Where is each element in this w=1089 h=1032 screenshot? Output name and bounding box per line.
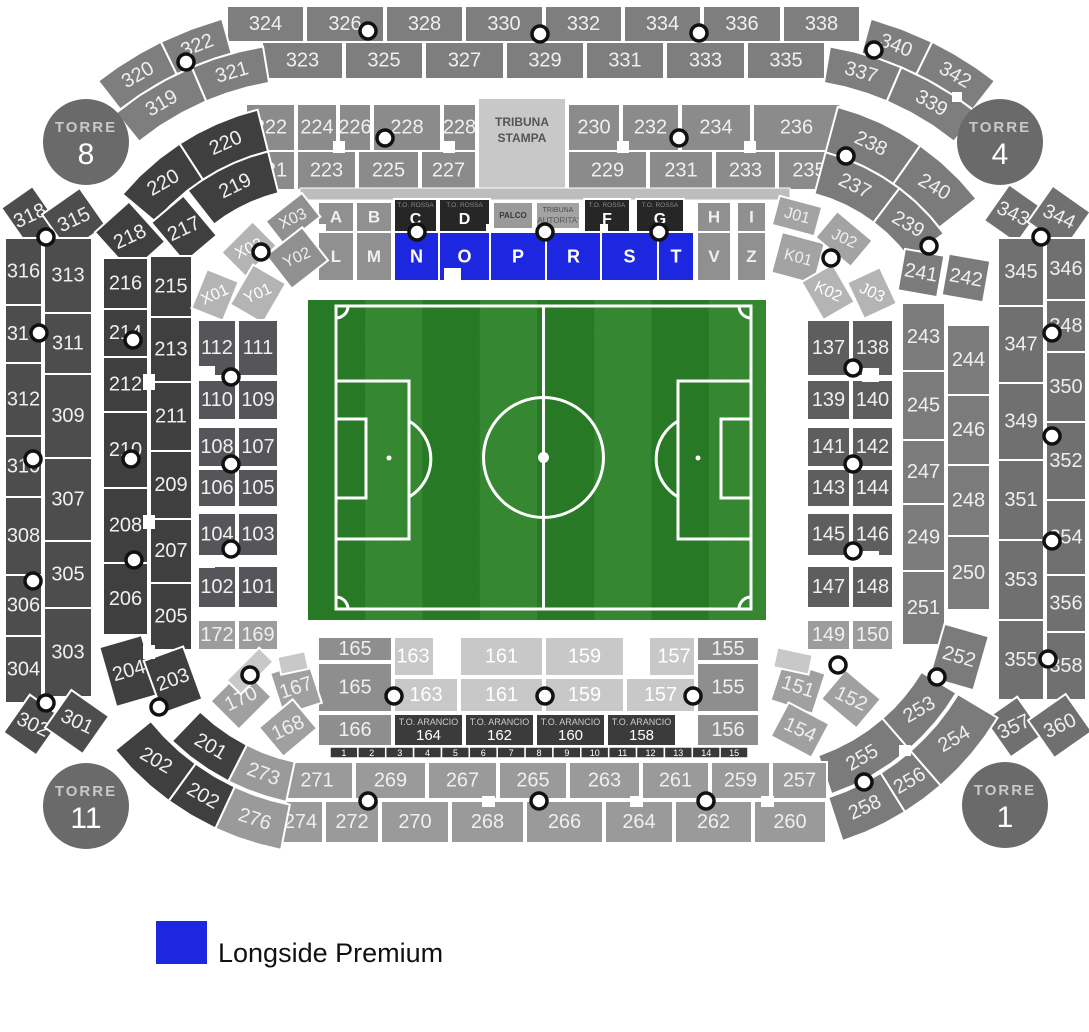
svg-text:331: 331 <box>608 50 641 72</box>
svg-text:249: 249 <box>907 527 940 549</box>
svg-text:161: 161 <box>485 684 518 706</box>
svg-text:TORRE: TORRE <box>969 119 1031 136</box>
svg-text:213: 213 <box>154 339 187 361</box>
svg-text:212: 212 <box>109 374 142 396</box>
svg-text:TRIBUNA: TRIBUNA <box>543 207 574 214</box>
svg-text:159: 159 <box>568 646 601 668</box>
svg-text:V: V <box>708 247 720 266</box>
svg-text:8: 8 <box>536 748 541 758</box>
svg-text:15: 15 <box>729 748 739 758</box>
svg-text:146: 146 <box>856 524 889 546</box>
svg-text:304: 304 <box>7 659 40 681</box>
svg-text:112: 112 <box>201 337 233 359</box>
svg-text:306: 306 <box>7 595 40 617</box>
svg-text:209: 209 <box>154 474 187 496</box>
svg-text:137: 137 <box>812 337 845 359</box>
svg-text:145: 145 <box>812 524 845 546</box>
svg-text:349: 349 <box>1004 411 1037 433</box>
svg-text:M: M <box>367 247 381 266</box>
svg-text:205: 205 <box>154 606 187 628</box>
svg-text:269: 269 <box>374 770 407 792</box>
svg-text:110: 110 <box>201 389 233 411</box>
svg-text:155: 155 <box>711 638 744 660</box>
svg-text:103: 103 <box>241 524 274 546</box>
svg-text:350: 350 <box>1049 376 1082 398</box>
svg-text:248: 248 <box>952 490 985 512</box>
svg-text:270: 270 <box>398 811 431 833</box>
svg-text:228: 228 <box>390 117 423 139</box>
svg-text:14: 14 <box>701 748 711 758</box>
svg-text:TORRE: TORRE <box>974 782 1036 799</box>
svg-text:4: 4 <box>425 748 430 758</box>
svg-text:111: 111 <box>243 337 273 359</box>
svg-text:STAMPA: STAMPA <box>498 131 547 145</box>
svg-text:11: 11 <box>70 802 101 835</box>
svg-text:160: 160 <box>558 727 583 744</box>
svg-text:138: 138 <box>856 337 889 359</box>
svg-text:323: 323 <box>286 50 319 72</box>
svg-text:8: 8 <box>78 138 95 171</box>
svg-text:102: 102 <box>200 576 233 598</box>
svg-text:347: 347 <box>1004 334 1037 356</box>
svg-text:267: 267 <box>446 770 479 792</box>
svg-text:261: 261 <box>659 770 692 792</box>
svg-text:243: 243 <box>907 326 940 348</box>
svg-text:1: 1 <box>997 801 1014 834</box>
svg-text:345: 345 <box>1004 261 1037 283</box>
svg-text:223: 223 <box>310 160 343 182</box>
svg-text:336: 336 <box>725 13 758 35</box>
svg-text:148: 148 <box>856 576 889 598</box>
svg-text:312: 312 <box>7 389 40 411</box>
svg-text:272: 272 <box>335 811 368 833</box>
svg-text:245: 245 <box>907 395 940 417</box>
svg-text:R: R <box>567 247 580 267</box>
svg-text:T.O. ROSSA: T.O. ROSSA <box>446 202 483 209</box>
svg-text:PALCO: PALCO <box>499 211 526 220</box>
svg-text:5: 5 <box>453 748 458 758</box>
svg-text:246: 246 <box>952 419 985 441</box>
svg-text:228: 228 <box>443 117 476 139</box>
svg-text:352: 352 <box>1049 450 1082 472</box>
svg-text:1: 1 <box>341 748 346 758</box>
svg-text:TRIBUNA: TRIBUNA <box>495 115 549 129</box>
svg-text:271: 271 <box>300 770 333 792</box>
svg-text:101: 101 <box>241 576 274 598</box>
svg-text:2: 2 <box>369 748 374 758</box>
svg-text:P: P <box>512 247 524 267</box>
svg-text:139: 139 <box>812 389 845 411</box>
svg-text:6: 6 <box>481 748 486 758</box>
svg-text:250: 250 <box>952 562 985 584</box>
svg-text:164: 164 <box>416 727 441 744</box>
svg-text:231: 231 <box>664 160 697 182</box>
svg-text:106: 106 <box>200 477 233 499</box>
svg-text:TORRE: TORRE <box>55 119 117 136</box>
svg-text:158: 158 <box>629 727 654 744</box>
svg-text:236: 236 <box>780 117 813 139</box>
svg-text:T: T <box>671 247 682 267</box>
svg-text:233: 233 <box>729 160 762 182</box>
svg-text:226: 226 <box>338 117 371 139</box>
svg-text:229: 229 <box>591 160 624 182</box>
svg-text:335: 335 <box>769 50 802 72</box>
svg-text:163: 163 <box>409 684 442 706</box>
svg-text:303: 303 <box>51 642 84 664</box>
svg-text:O: O <box>457 247 471 267</box>
svg-text:346: 346 <box>1049 258 1082 280</box>
svg-text:327: 327 <box>448 50 481 72</box>
svg-text:157: 157 <box>657 646 690 668</box>
svg-text:251: 251 <box>907 597 940 619</box>
svg-text:332: 332 <box>567 13 600 35</box>
svg-text:355: 355 <box>1004 649 1037 671</box>
svg-text:333: 333 <box>689 50 722 72</box>
svg-text:329: 329 <box>528 50 561 72</box>
svg-text:D: D <box>459 211 471 228</box>
svg-text:172: 172 <box>200 624 233 646</box>
svg-text:109: 109 <box>241 389 274 411</box>
svg-text:142: 142 <box>856 436 889 458</box>
svg-text:353: 353 <box>1004 569 1037 591</box>
svg-text:326: 326 <box>328 13 361 35</box>
svg-text:316: 316 <box>7 261 40 283</box>
svg-text:224: 224 <box>300 117 333 139</box>
svg-text:265: 265 <box>516 770 549 792</box>
svg-text:262: 262 <box>697 811 730 833</box>
svg-text:263: 263 <box>588 770 621 792</box>
svg-text:308: 308 <box>7 525 40 547</box>
svg-text:206: 206 <box>109 588 142 610</box>
svg-text:9: 9 <box>564 748 569 758</box>
svg-text:12: 12 <box>645 748 655 758</box>
svg-text:7: 7 <box>509 748 514 758</box>
svg-text:B: B <box>368 208 380 227</box>
svg-text:324: 324 <box>249 13 282 35</box>
svg-text:338: 338 <box>805 13 838 35</box>
svg-text:163: 163 <box>396 646 429 668</box>
svg-text:11: 11 <box>618 748 627 758</box>
svg-text:211: 211 <box>155 406 187 428</box>
svg-text:155: 155 <box>711 677 744 699</box>
svg-text:T.O. ARANCIO: T.O. ARANCIO <box>399 717 459 727</box>
svg-text:T.O. ARANCIO: T.O. ARANCIO <box>612 717 672 727</box>
svg-text:307: 307 <box>51 489 84 511</box>
svg-text:4: 4 <box>992 138 1009 171</box>
svg-text:165: 165 <box>338 677 371 699</box>
svg-text:215: 215 <box>154 276 187 298</box>
svg-text:244: 244 <box>952 349 985 371</box>
svg-text:169: 169 <box>241 624 274 646</box>
svg-text:144: 144 <box>856 477 889 499</box>
svg-text:T.O. ARANCIO: T.O. ARANCIO <box>470 717 530 727</box>
svg-text:Longside Premium: Longside Premium <box>218 938 443 968</box>
svg-text:147: 147 <box>812 576 845 598</box>
svg-text:247: 247 <box>907 461 940 483</box>
svg-text:166: 166 <box>338 719 371 741</box>
svg-text:216: 216 <box>109 273 142 295</box>
svg-text:227: 227 <box>432 160 465 182</box>
svg-text:141: 141 <box>812 436 845 458</box>
svg-text:N: N <box>410 247 423 267</box>
svg-text:10: 10 <box>590 748 600 758</box>
svg-text:T.O. ROSSA: T.O. ROSSA <box>642 202 679 209</box>
svg-text:328: 328 <box>408 13 441 35</box>
svg-text:T.O. ARANCIO: T.O. ARANCIO <box>541 717 601 727</box>
svg-text:325: 325 <box>367 50 400 72</box>
svg-text:311: 311 <box>52 333 84 355</box>
svg-text:143: 143 <box>812 477 845 499</box>
svg-text:3: 3 <box>397 748 402 758</box>
svg-text:225: 225 <box>372 160 405 182</box>
svg-text:I: I <box>749 208 754 227</box>
svg-text:230: 230 <box>577 117 610 139</box>
svg-text:208: 208 <box>109 515 142 537</box>
svg-text:266: 266 <box>548 811 581 833</box>
svg-text:159: 159 <box>568 684 601 706</box>
svg-text:259: 259 <box>724 770 757 792</box>
svg-text:Z: Z <box>746 247 756 266</box>
svg-text:T.O. ROSSA: T.O. ROSSA <box>589 202 626 209</box>
svg-text:313: 313 <box>51 265 84 287</box>
svg-text:157: 157 <box>644 684 677 706</box>
svg-text:H: H <box>708 208 720 227</box>
svg-text:162: 162 <box>487 727 512 744</box>
svg-text:13: 13 <box>673 748 683 758</box>
svg-text:232: 232 <box>634 117 667 139</box>
svg-text:156: 156 <box>711 719 744 741</box>
svg-text:161: 161 <box>485 646 518 668</box>
svg-text:330: 330 <box>487 13 520 35</box>
svg-text:234: 234 <box>699 117 732 139</box>
svg-text:L: L <box>331 247 341 266</box>
svg-text:264: 264 <box>622 811 655 833</box>
svg-text:149: 149 <box>812 624 845 646</box>
svg-text:S: S <box>623 247 635 267</box>
svg-text:268: 268 <box>471 811 504 833</box>
svg-text:140: 140 <box>856 389 889 411</box>
svg-text:260: 260 <box>773 811 806 833</box>
svg-text:105: 105 <box>241 477 274 499</box>
svg-text:107: 107 <box>241 436 274 458</box>
svg-text:A: A <box>330 208 342 227</box>
svg-text:257: 257 <box>783 770 816 792</box>
svg-text:T.O. ROSSA: T.O. ROSSA <box>397 202 434 209</box>
svg-text:334: 334 <box>646 13 679 35</box>
svg-text:356: 356 <box>1049 593 1082 615</box>
svg-text:165: 165 <box>338 638 371 660</box>
svg-text:207: 207 <box>154 540 187 562</box>
svg-text:305: 305 <box>51 564 84 586</box>
svg-text:309: 309 <box>51 405 84 427</box>
svg-text:351: 351 <box>1004 489 1037 511</box>
svg-text:150: 150 <box>856 624 889 646</box>
svg-text:TORRE: TORRE <box>55 783 117 800</box>
